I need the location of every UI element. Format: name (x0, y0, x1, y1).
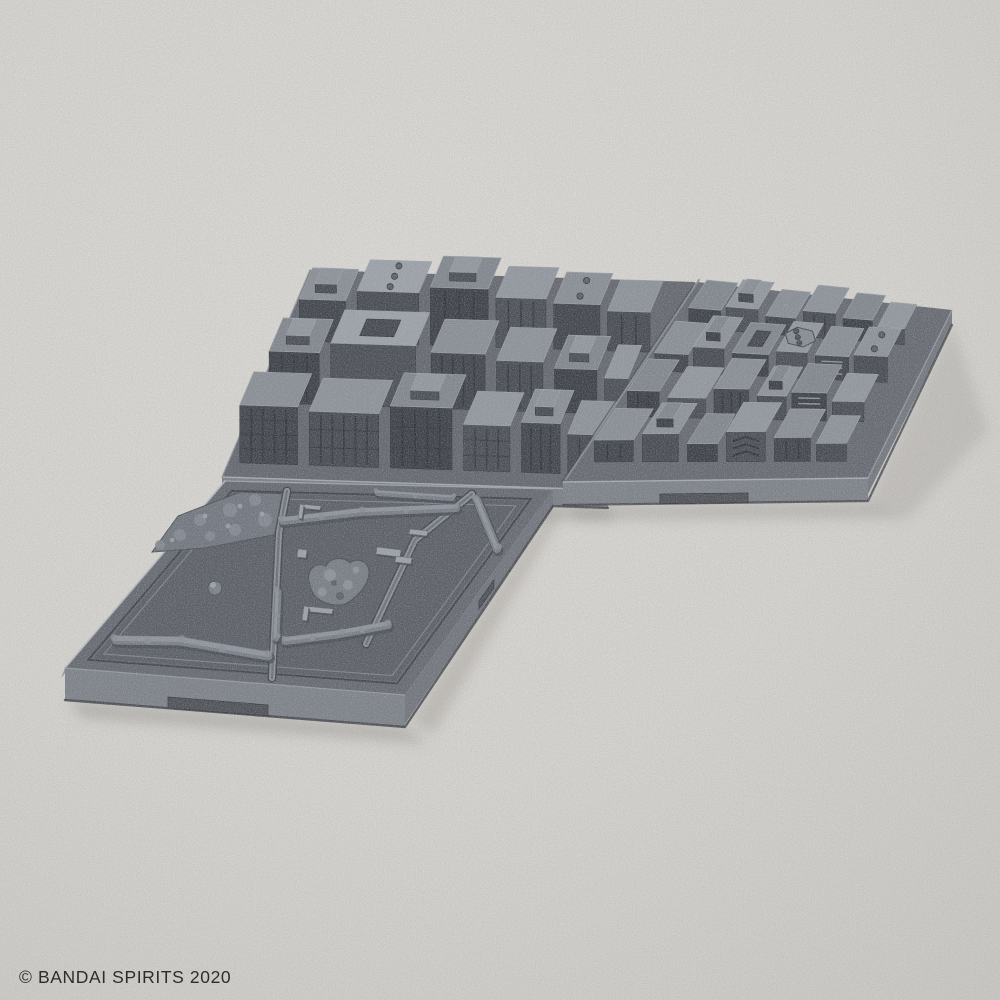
model-kit-photo: © BANDAI SPIRITS 2020 (0, 0, 1000, 1000)
photo-grain-light (0, 0, 1000, 1000)
product-photo-scene: © BANDAI SPIRITS 2020 (0, 0, 1000, 1000)
copyright-text: © BANDAI SPIRITS 2020 (19, 967, 231, 987)
